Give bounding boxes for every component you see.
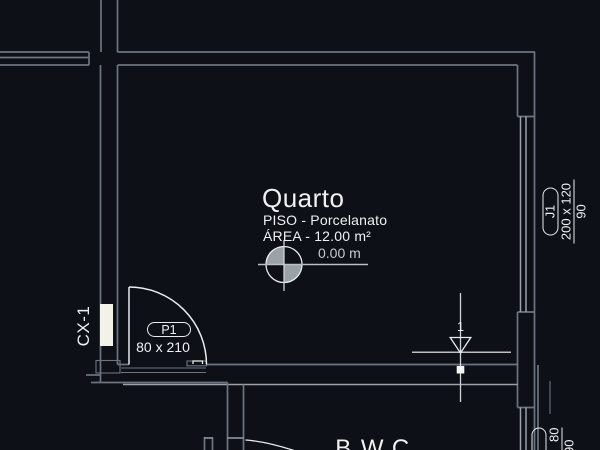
bwc-room-label: B.W.C	[328, 435, 418, 450]
door-p1-frame	[96, 361, 207, 374]
window-br-tag	[532, 428, 547, 450]
window-j1-tag: J1	[543, 188, 559, 236]
door-p1-tag: P1	[147, 322, 191, 337]
room-floor-label: PISO - Porcelanato	[263, 212, 387, 228]
window-j1-dims: 200 x 120	[560, 180, 575, 244]
room-title: Quarto	[262, 184, 345, 212]
level-value: 0.00 m	[318, 245, 361, 261]
cad-floorplan-viewport[interactable]: Quarto PISO - Porcelanato ÁREA - 12.00 m…	[0, 0, 600, 450]
cx1-label: CX-1	[75, 286, 93, 366]
window-br-glazing	[521, 408, 527, 450]
window-j1-sill: 90	[575, 180, 589, 244]
room-area-label: ÁREA - 12.00 m²	[263, 228, 371, 244]
window-j1-tag-text: J1	[544, 205, 558, 218]
window-j1-label: J1 200 x 120 90	[543, 180, 588, 244]
door-p1-dims: 80 x 210	[117, 339, 209, 355]
door-p1-tag-text: P1	[161, 323, 176, 337]
bwc-door-swing	[246, 440, 295, 450]
window-br-label: 80 90	[532, 428, 577, 450]
window-br-dims: 80	[548, 428, 563, 450]
section-number: 1	[452, 320, 469, 334]
section-cut-marker	[412, 293, 511, 402]
window-j1-glazing	[521, 117, 527, 313]
cx1-box	[100, 304, 113, 346]
window-br-sill: 90	[563, 428, 577, 450]
